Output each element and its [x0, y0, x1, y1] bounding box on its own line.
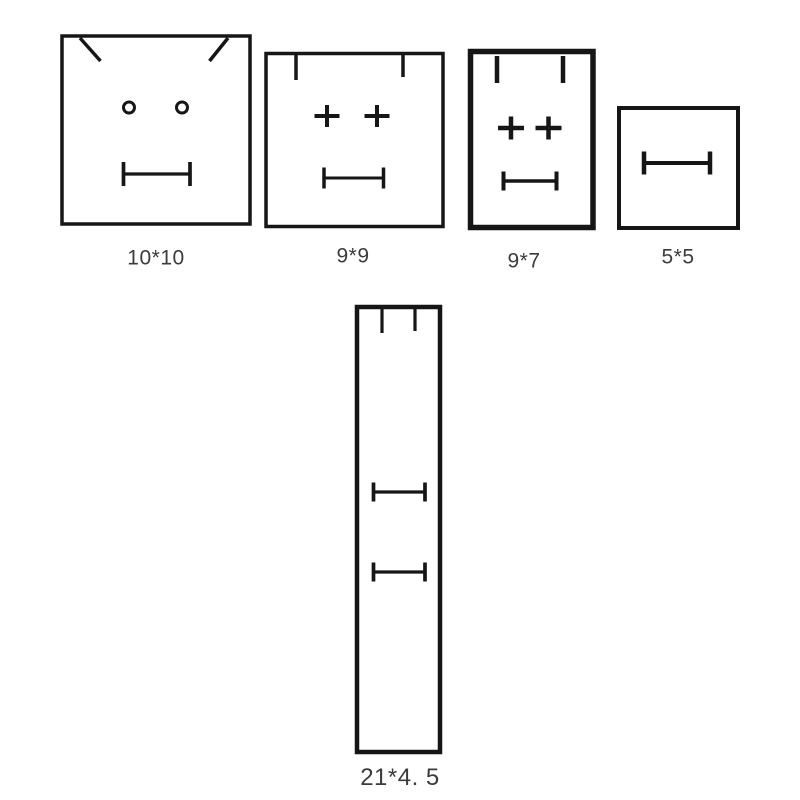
figure-rect-9x7 [471, 52, 594, 228]
size-label-square-10x10: 10*10 [127, 248, 184, 269]
size-label-square-9x9: 9*9 [336, 246, 369, 267]
eye-circle-left-icon [124, 102, 135, 113]
outline-square-5x5 [619, 108, 738, 228]
figure-rect-21x4-5 [357, 307, 440, 752]
corner-diagonal-left-icon [80, 38, 101, 61]
corner-diagonal-right-icon [210, 38, 229, 61]
outline-square-9x9 [266, 54, 443, 227]
size-label-rect-21x4-5: 21*4. 5 [360, 766, 440, 790]
figure-square-9x9 [266, 54, 443, 227]
outline-rect-9x7 [471, 52, 594, 228]
outline-square-10x10 [62, 36, 250, 224]
outline-rect-21x4-5 [357, 307, 440, 752]
size-label-square-5x5: 5*5 [661, 247, 694, 268]
shapes-svg [0, 0, 800, 800]
size-label-rect-9x7: 9*7 [507, 251, 540, 272]
figure-square-5x5 [619, 108, 738, 228]
eye-circle-right-icon [177, 102, 188, 113]
diagram-canvas: 10*109*99*75*521*4. 5 [0, 0, 800, 800]
figure-square-10x10 [62, 36, 250, 224]
